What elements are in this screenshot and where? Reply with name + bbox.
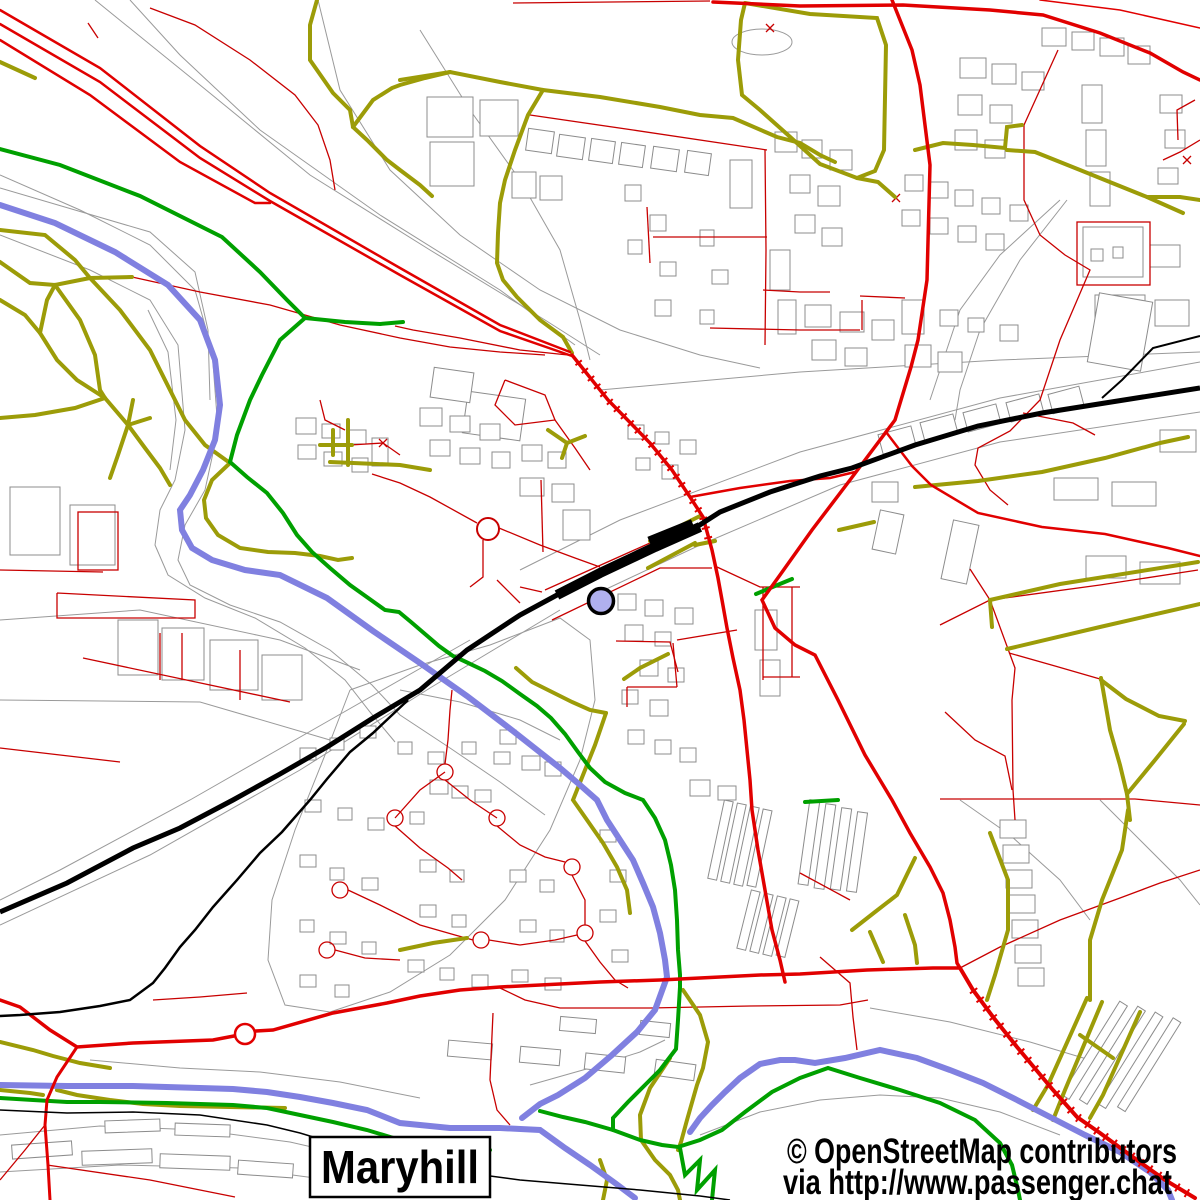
svg-text:via http://www.passenger.chat: via http://www.passenger.chat	[783, 1163, 1172, 1200]
svg-text:Maryhill: Maryhill	[321, 1141, 479, 1193]
